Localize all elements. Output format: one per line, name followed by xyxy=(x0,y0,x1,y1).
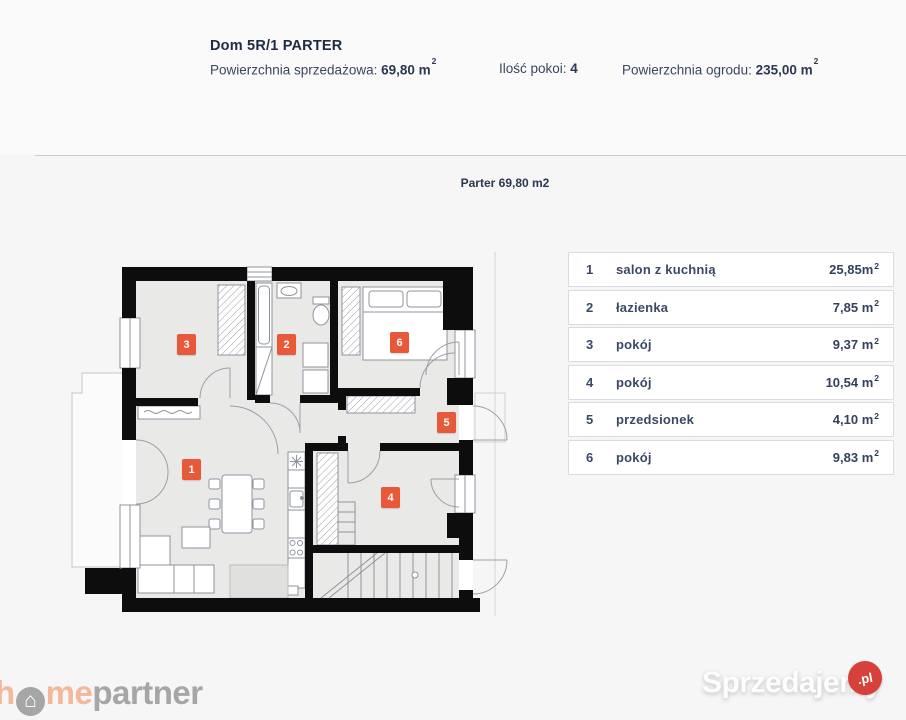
rooms-count-value: 4 xyxy=(570,61,578,76)
room-label: łazienka xyxy=(616,300,833,315)
legend-row: 2 łazienka 7,85 m2 xyxy=(568,290,894,325)
room-area: 9,83 m xyxy=(833,450,873,465)
room-area-sup: 2 xyxy=(874,261,879,271)
plan-caption: Parter 69,80 m2 xyxy=(395,176,615,190)
room-number: 3 xyxy=(586,337,616,352)
room-area-sup: 2 xyxy=(874,448,879,458)
logo-partner: partner xyxy=(92,674,202,711)
room-area-sup: 2 xyxy=(874,411,879,421)
room-area: 25,85m xyxy=(829,262,873,277)
room-label: salon z kuchnią xyxy=(616,262,829,277)
sale-area-sup: 2 xyxy=(432,56,437,66)
logo-h: h xyxy=(0,674,15,711)
rooms-count-label: Ilość pokoi: xyxy=(499,61,570,76)
garden-area-label: Powierzchnia ogrodu: xyxy=(622,63,756,78)
horizontal-divider xyxy=(35,155,906,156)
room-area: 10,54 m xyxy=(826,375,874,390)
room-marker-2: 2 xyxy=(277,334,296,355)
legend-row: 1 salon z kuchnią 25,85m2 xyxy=(568,252,894,287)
legend-row: 6 pokój 9,83 m2 xyxy=(568,440,894,475)
room-label: przedsionek xyxy=(616,412,833,427)
room-number: 1 xyxy=(586,262,616,277)
sale-area-value: 69,80 m xyxy=(381,63,431,78)
garden-area-info: Powierzchnia ogrodu: 235,00 m2 xyxy=(622,61,818,78)
room-marker-5: 5 xyxy=(437,412,456,433)
room-number: 6 xyxy=(586,450,616,465)
room-area-sup: 2 xyxy=(874,298,879,308)
room-area: 4,10 m xyxy=(833,412,873,427)
room-label: pokój xyxy=(616,375,826,390)
room-area: 9,37 m xyxy=(833,337,873,352)
floor-plan: 1 2 3 4 5 6 xyxy=(70,230,510,625)
header-band xyxy=(0,0,906,155)
room-number: 4 xyxy=(586,375,616,390)
room-area-sup: 2 xyxy=(874,336,879,346)
rooms-count-info: Ilość pokoi: 4 xyxy=(499,61,578,76)
legend-row: 5 przedsionek 4,10 m2 xyxy=(568,402,894,437)
room-marker-1: 1 xyxy=(182,459,201,480)
room-area: 7,85 m xyxy=(833,300,873,315)
room-marker-3: 3 xyxy=(177,334,196,355)
room-marker-4: 4 xyxy=(381,487,400,508)
page-title: Dom 5R/1 PARTER xyxy=(210,38,342,54)
room-label: pokój xyxy=(616,450,833,465)
legend-row: 4 pokój 10,54 m2 xyxy=(568,365,894,400)
homepartner-logo: h⌂mepartner xyxy=(0,674,203,713)
sale-area-info: Powierzchnia sprzedażowa: 69,80 m2 xyxy=(210,61,436,78)
room-label: pokój xyxy=(616,337,833,352)
garden-area-value: 235,00 m xyxy=(756,63,813,78)
room-marker-6: 6 xyxy=(390,332,409,353)
logo-me: me xyxy=(46,674,93,711)
room-number: 2 xyxy=(586,300,616,315)
room-legend-table: 1 salon z kuchnią 25,85m2 2 łazienka 7,8… xyxy=(568,252,894,478)
garden-area-sup: 2 xyxy=(814,56,819,66)
home-icon: ⌂ xyxy=(16,687,45,716)
legend-row: 3 pokój 9,37 m2 xyxy=(568,327,894,362)
room-number: 5 xyxy=(586,412,616,427)
room-area-sup: 2 xyxy=(874,373,879,383)
sprzedajemy-watermark: Sprzedajemy .pl xyxy=(702,666,882,700)
sale-area-label: Powierzchnia sprzedażowa: xyxy=(210,63,381,78)
